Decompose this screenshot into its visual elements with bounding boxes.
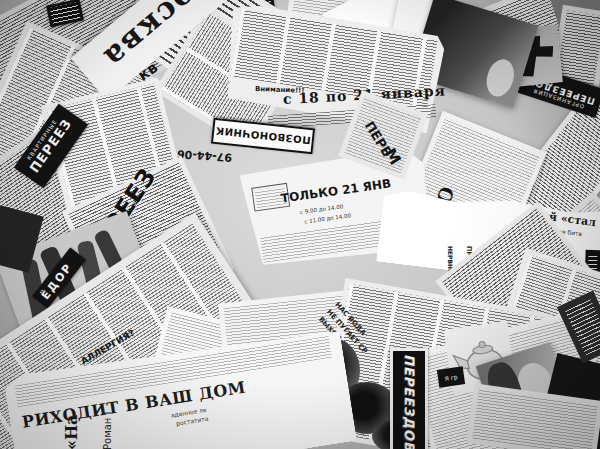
tiny-white-text [50,2,81,23]
banner-pereezdov-vertical: ПЕРЕЕЗДОВ [390,348,428,449]
pereezdov-text: ПЕРЕЕЗДОВ [402,354,417,449]
na-quote-text: «На [62,415,81,449]
ya-gr-text: Я гр [444,373,458,382]
vertical-na-quote: «На [62,408,81,449]
banner-text: ПОЗВОНОЧНИК [215,126,311,147]
phone-number-top: 97-44-06 [177,148,233,163]
body-text-columns [472,389,598,449]
photo-highlight [482,56,518,100]
headline-tolko: ТОЛЬКО 21 ЯНВ [280,176,392,205]
roman-text: Роман Г [102,408,113,449]
vertical-roman: Роман Г [96,398,115,449]
label-ya-gr: Я гр [437,366,465,387]
schedule-line-2: с 11.00 до 14.00 [304,212,351,224]
newspaper-collage-photo: ОЧО ОРГАНИЗАЦИЯ ПЕРЕЕЗДОВ Внимание!!! с … [0,0,600,449]
